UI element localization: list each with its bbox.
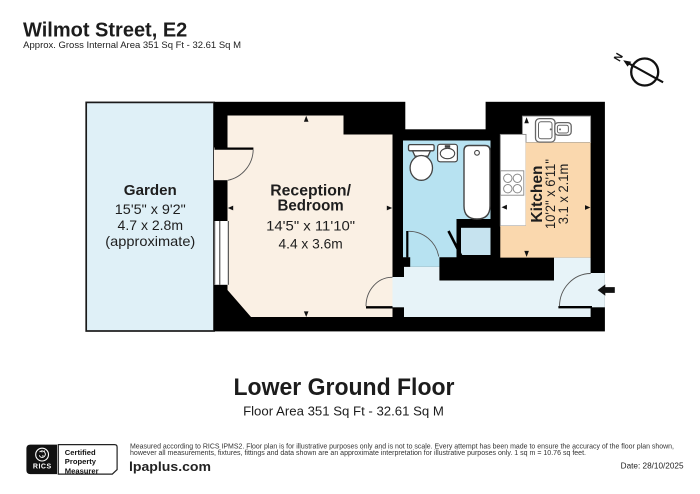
svg-text:Lower Ground Floor: Lower Ground Floor [234,374,455,401]
svg-text:Date: 28/10/2025: Date: 28/10/2025 [621,462,684,471]
svg-text:RICS: RICS [33,464,52,471]
svg-text:Wilmot Street, E2: Wilmot Street, E2 [23,20,187,42]
svg-text:15'5" x 9'2": 15'5" x 9'2" [115,202,186,217]
svg-text:Garden: Garden [124,183,177,199]
svg-text:Floor Area 351 Sq Ft - 32.61 S: Floor Area 351 Sq Ft - 32.61 Sq M [243,404,444,419]
svg-text:however all measurements, fixt: however all measurements, fixtures, fitt… [130,450,586,457]
svg-text:Bedroom: Bedroom [277,198,343,215]
svg-text:Measurer: Measurer [65,466,99,475]
svg-text:4.4 x 3.6m: 4.4 x 3.6m [279,237,343,252]
svg-text:4.7 x 2.8m: 4.7 x 2.8m [118,218,184,233]
svg-text:lpaplus.com: lpaplus.com [129,460,211,474]
svg-text:Certified: Certified [65,448,96,457]
svg-text:(approximate): (approximate) [105,234,195,249]
svg-text:Property: Property [65,457,97,466]
svg-text:3.1 x 2.1m: 3.1 x 2.1m [556,164,571,225]
svg-text:14'5" x 11'10": 14'5" x 11'10" [266,219,355,234]
svg-text:Approx. Gross Internal Area 35: Approx. Gross Internal Area 351 Sq Ft - … [23,40,241,50]
